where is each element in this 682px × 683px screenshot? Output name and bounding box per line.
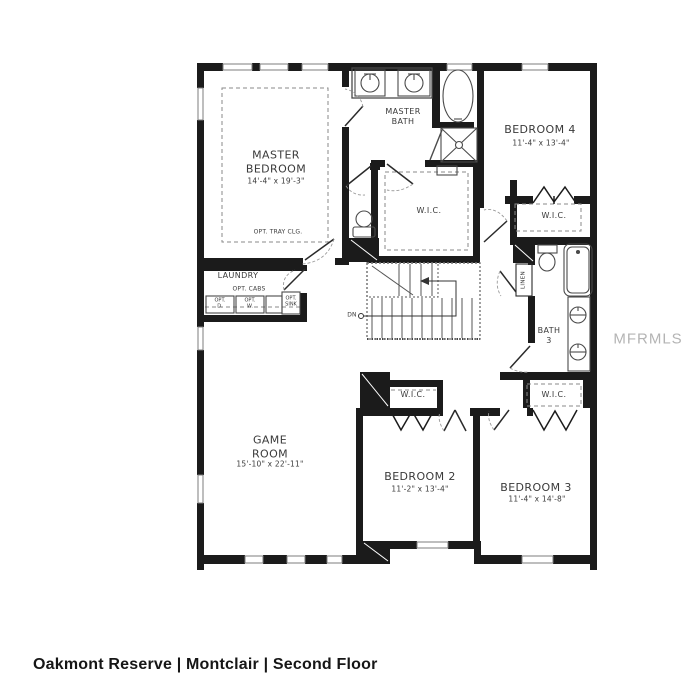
floorplan-drawing: [0, 0, 682, 683]
bedroom2-label: BEDROOM 2: [384, 470, 456, 484]
plan-caption: Oakmont Reserve | Montclair | Second Flo…: [33, 656, 378, 674]
master-wic-label: W.I.C.: [417, 206, 442, 216]
laundry-label: LAUNDRY: [218, 271, 259, 281]
floorplan-page: MASTER BEDROOM 14'-4" x 19'-3" OPT. TRAY…: [0, 0, 682, 683]
bedroom3-wic-bifold: [533, 410, 577, 430]
bath3-toilet: [538, 245, 557, 271]
opt-washer-label: OPT. W.: [244, 298, 255, 310]
stair-direction-arrow: [359, 277, 457, 319]
linen-label: LINEN: [521, 271, 528, 289]
bath3-vanity-sinks: [568, 297, 590, 371]
stairs: [359, 263, 481, 339]
opt-tray-ceiling-note: OPT. TRAY CLG.: [254, 228, 303, 236]
bath3-tub: [564, 244, 592, 296]
opt-dryer-label: OPT. D.: [214, 298, 225, 310]
game-room-label: GAME ROOM: [252, 433, 288, 461]
bedroom3-dims: 11'-4" x 14'-8": [508, 494, 565, 503]
master-bedroom-dims: 14'-4" x 19'-3": [247, 176, 304, 185]
mls-watermark: MFRMLS: [613, 331, 682, 350]
bedroom3-label: BEDROOM 3: [500, 481, 572, 495]
bedroom2-dims: 11'-2" x 13'-4": [391, 484, 448, 493]
opt-sink-label: OPT. SINK: [285, 296, 297, 308]
game-room-dims: 15'-10" x 22'-11": [236, 459, 303, 468]
bedroom3-wic-label: W.I.C.: [542, 390, 567, 400]
master-shower: [430, 128, 477, 162]
master-bath-label: MASTER BATH: [385, 107, 420, 127]
bedroom2-wic-label: W.I.C.: [401, 390, 426, 400]
master-bedroom-label: MASTER BEDROOM: [246, 148, 306, 176]
bedroom4-dims: 11'-4" x 13'-4": [512, 138, 569, 147]
master-vanity-sinks: [352, 68, 432, 98]
bath3-label: BATH 3: [538, 326, 561, 346]
bedroom4-wic-label: W.I.C.: [542, 211, 567, 221]
opt-cabs-note: OPT. CABS: [232, 285, 265, 293]
bedroom4-label: BEDROOM 4: [504, 123, 576, 137]
master-tub: [443, 70, 473, 122]
stairs-down-label: DN: [347, 311, 357, 319]
master-wic-shelf: [437, 166, 457, 175]
